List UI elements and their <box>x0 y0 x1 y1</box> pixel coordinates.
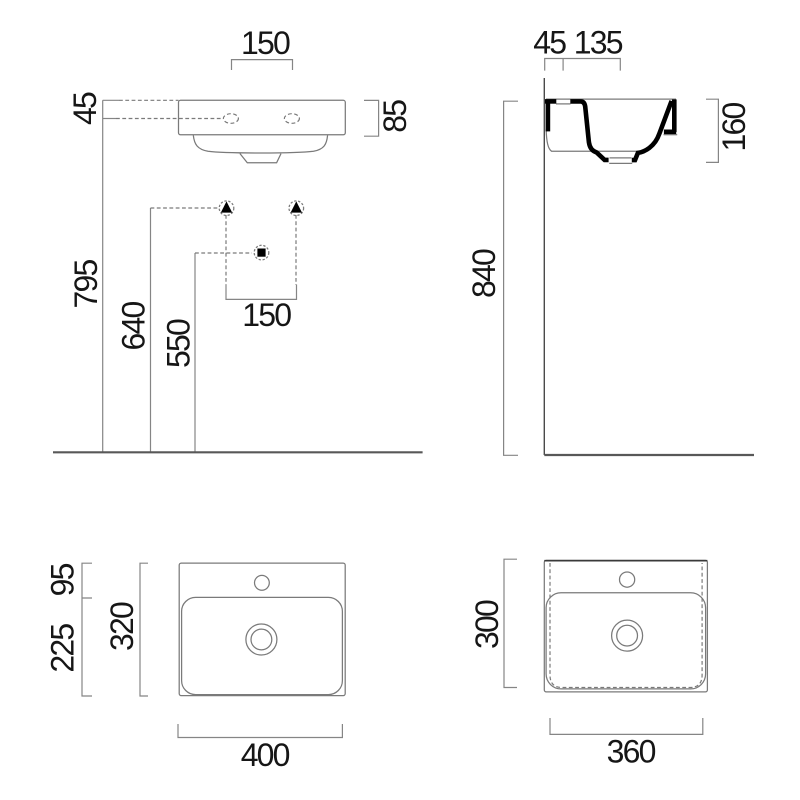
svg-text:150: 150 <box>241 25 290 61</box>
svg-text:400: 400 <box>241 737 290 773</box>
svg-text:95: 95 <box>45 563 81 596</box>
svg-text:160: 160 <box>716 103 752 152</box>
svg-text:45: 45 <box>533 24 566 60</box>
svg-text:150: 150 <box>242 297 291 333</box>
svg-text:320: 320 <box>104 602 140 651</box>
svg-text:300: 300 <box>469 600 505 649</box>
svg-text:135: 135 <box>574 24 623 60</box>
svg-text:550: 550 <box>161 319 197 368</box>
svg-text:45: 45 <box>67 92 103 125</box>
svg-text:85: 85 <box>377 100 413 133</box>
svg-text:360: 360 <box>607 733 656 769</box>
svg-text:225: 225 <box>45 624 81 673</box>
svg-text:795: 795 <box>68 260 104 309</box>
svg-text:640: 640 <box>116 302 152 351</box>
svg-text:840: 840 <box>466 249 502 298</box>
